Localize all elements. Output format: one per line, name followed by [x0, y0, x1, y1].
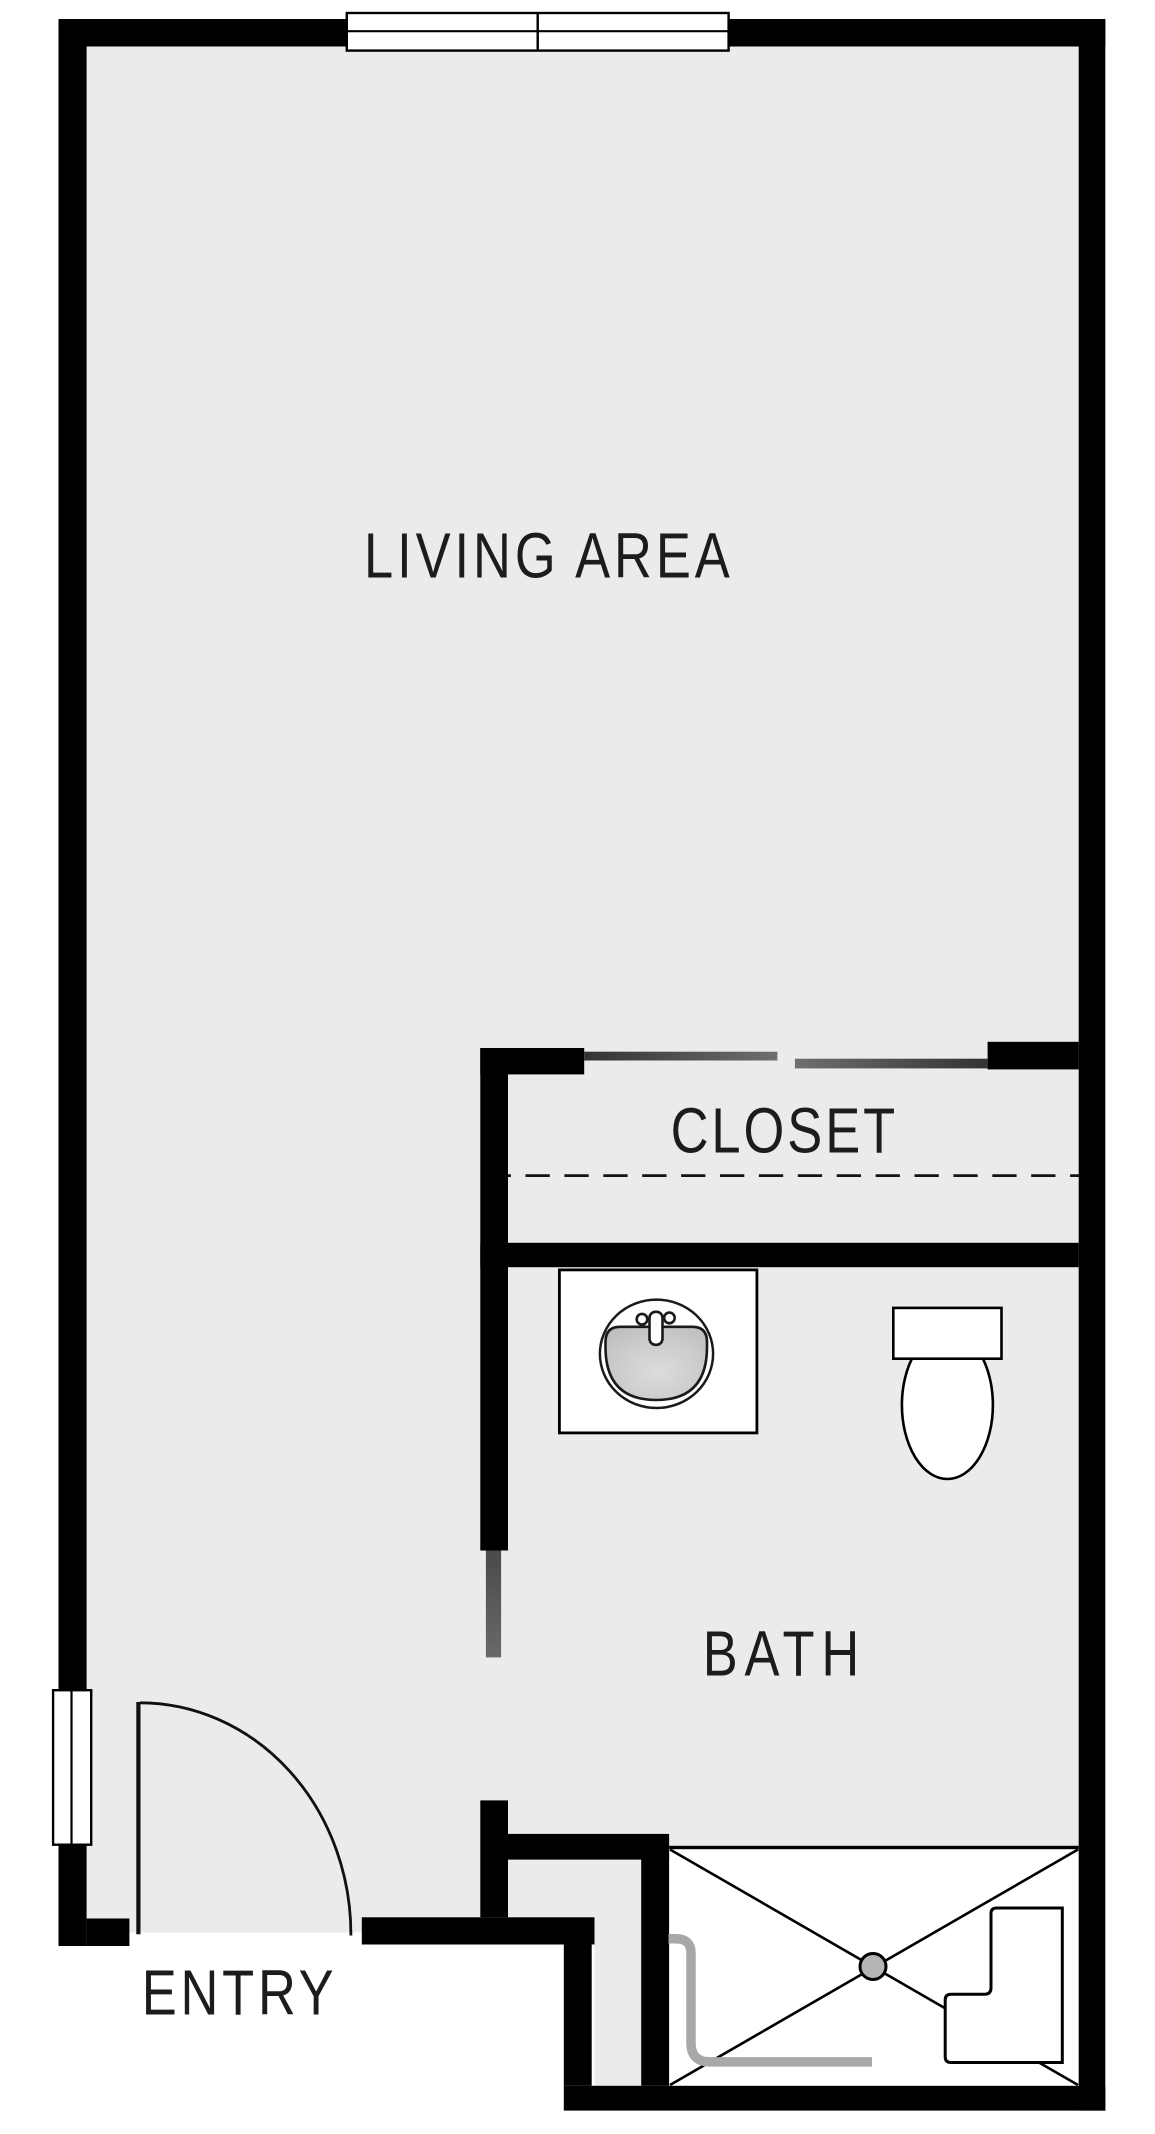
svg-text:LIVING AREA: LIVING AREA [364, 521, 730, 592]
svg-text:ENTRY: ENTRY [142, 1958, 334, 2029]
